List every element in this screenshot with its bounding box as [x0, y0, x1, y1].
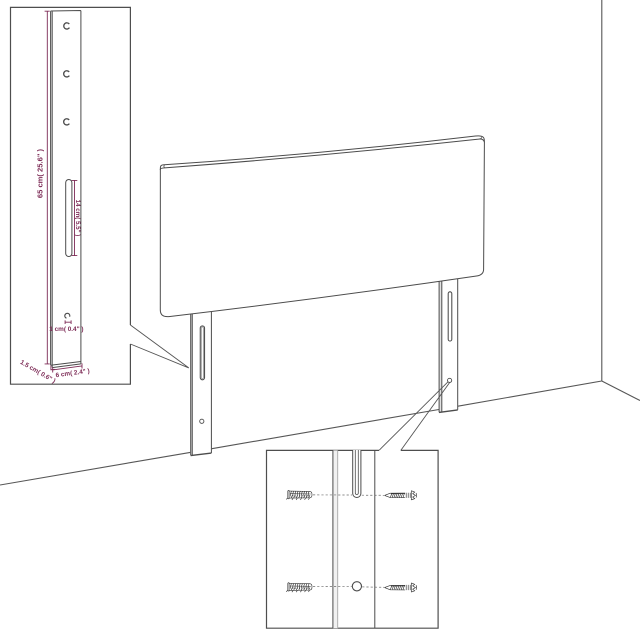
svg-text:14 cm( 5.5" ): 14 cm( 5.5" )	[74, 200, 81, 237]
svg-text:65 cm( 25.6" ): 65 cm( 25.6" )	[35, 148, 44, 198]
svg-text:1 cm( 0.4" ): 1 cm( 0.4" )	[49, 326, 83, 333]
